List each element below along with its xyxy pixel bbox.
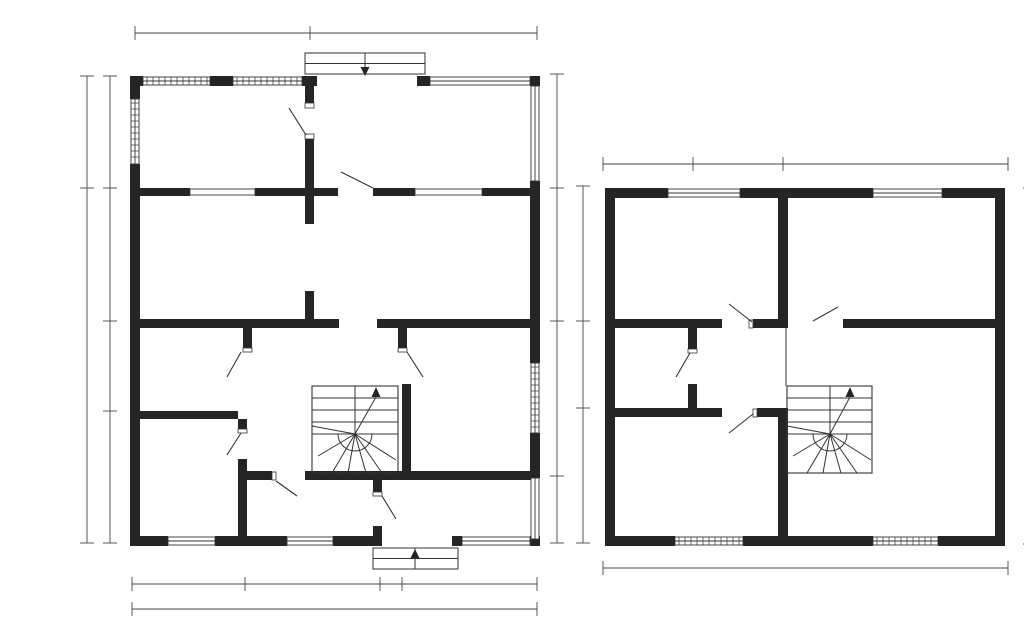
entrance-steps — [305, 53, 425, 76]
staircase — [787, 386, 872, 473]
window — [462, 537, 530, 545]
door-swing — [341, 172, 373, 188]
wall-segment — [305, 196, 314, 224]
window — [168, 537, 215, 545]
wall-segment — [843, 319, 995, 328]
stair-winder — [312, 426, 355, 434]
window — [873, 189, 942, 197]
window — [430, 77, 530, 85]
dimension-line — [80, 76, 94, 543]
wall-segment — [243, 328, 252, 348]
wall-segment — [402, 384, 411, 471]
stair-winder — [830, 434, 857, 473]
stair-direction-arrow — [372, 387, 381, 397]
wall-segment — [305, 139, 314, 188]
stair-winder — [787, 426, 830, 434]
wall-segment — [995, 188, 1005, 546]
wall-segment — [605, 536, 675, 546]
wall-segment — [238, 419, 247, 429]
wall-segment — [130, 164, 140, 546]
wall-segment — [130, 76, 140, 99]
entrance-arrow — [361, 67, 370, 76]
window — [287, 537, 333, 545]
dimension-line — [603, 561, 1008, 575]
wall-segment — [530, 76, 540, 86]
door-sill — [238, 429, 247, 433]
stair-arrow-stem — [355, 397, 376, 434]
window — [190, 189, 255, 195]
wall-segment — [305, 86, 314, 103]
dimension-line — [103, 76, 117, 543]
window — [415, 189, 482, 195]
wall-segment — [753, 319, 788, 328]
wall-segment — [615, 408, 722, 417]
door-swing — [676, 353, 690, 377]
wall-segment — [373, 188, 415, 196]
wall-segment — [938, 536, 1005, 546]
wall-segment — [398, 328, 407, 348]
wall-segment — [130, 536, 168, 546]
floorplan-figure: Floor plans — [40, 16, 1024, 624]
floorplan-drawing — [40, 16, 1024, 624]
dimension-line — [135, 26, 537, 40]
wall-segment — [778, 198, 788, 328]
door-swing — [276, 481, 297, 496]
window — [143, 77, 210, 85]
wall-segment — [133, 188, 190, 196]
window — [131, 99, 139, 164]
door-swing — [227, 352, 241, 377]
dimension-line — [550, 74, 564, 543]
window — [531, 363, 539, 433]
wall-segment — [247, 471, 272, 480]
wall-segment — [333, 536, 382, 546]
wall-segment — [615, 319, 722, 328]
wall-segment — [377, 319, 533, 328]
wall-segment — [605, 188, 615, 546]
wall-segment — [255, 188, 338, 196]
wall-segment — [688, 384, 697, 411]
stair-winder — [793, 434, 830, 456]
door-sill — [753, 409, 757, 417]
door-swing — [813, 307, 838, 321]
door-swing — [382, 496, 396, 519]
wall-segment — [305, 291, 314, 319]
window — [531, 478, 539, 539]
door-sill — [373, 492, 382, 496]
stair-direction-arrow — [846, 387, 855, 397]
door-swing — [729, 414, 753, 433]
wall-segment — [133, 411, 238, 419]
door-sill — [272, 472, 276, 480]
wall-segment — [305, 471, 537, 480]
window — [233, 77, 302, 85]
wall-segment — [215, 536, 287, 546]
dimension-line — [576, 186, 590, 543]
window-frame — [415, 189, 482, 195]
window — [873, 537, 938, 545]
wall-segment — [530, 181, 540, 363]
door-sill — [305, 103, 314, 108]
entrance-arrow — [411, 549, 420, 558]
window — [668, 189, 740, 197]
window — [531, 86, 539, 181]
window — [675, 537, 743, 545]
door-swing — [289, 108, 306, 135]
wall-segment — [482, 188, 537, 196]
wall-segment — [743, 536, 873, 546]
upper-floor-plan — [576, 157, 1024, 575]
entrance-steps — [373, 548, 458, 569]
stair-winder — [318, 434, 355, 456]
wall-segment — [238, 459, 247, 546]
wall-segment — [373, 480, 382, 492]
dimension-line — [132, 577, 537, 591]
window-frame — [190, 189, 255, 195]
dimension-line — [132, 602, 537, 616]
wall-segment — [452, 536, 462, 546]
door-swing — [407, 352, 423, 377]
wall-segment — [740, 188, 873, 198]
wall-segment — [210, 76, 233, 86]
dimension-line — [603, 157, 1008, 171]
wall-segment — [688, 328, 697, 349]
wall-segment — [133, 319, 339, 328]
stair-arrow-stem — [830, 397, 850, 434]
door-sill — [243, 348, 252, 352]
wall-segment — [373, 526, 382, 536]
door-swing — [729, 304, 752, 322]
door-sill — [398, 348, 407, 352]
wall-segment — [302, 76, 317, 86]
door-swing — [227, 433, 241, 455]
staircase — [312, 386, 398, 473]
wall-segment — [417, 76, 430, 86]
ground-floor-plan — [80, 26, 564, 616]
stair-winder — [355, 434, 382, 473]
door-sill — [688, 349, 697, 353]
